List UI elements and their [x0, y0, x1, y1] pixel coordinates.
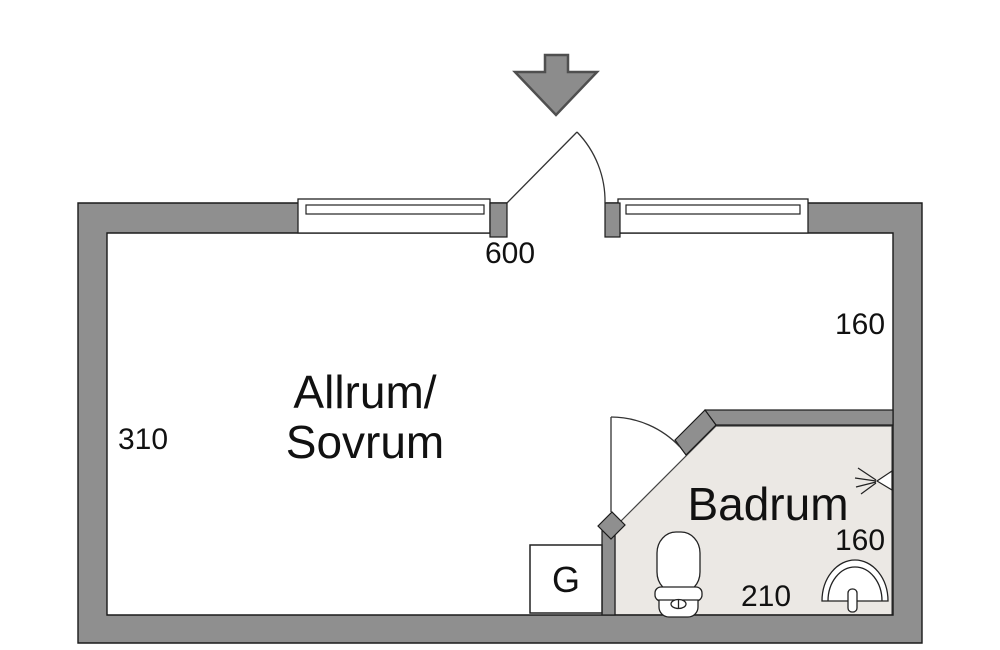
- window-glazing: [306, 205, 484, 214]
- main-room-name-line1: Allrum/: [286, 367, 444, 417]
- window-glazing: [626, 205, 800, 214]
- dimension-label-left-height: 310: [118, 425, 168, 455]
- window-frame: [618, 199, 808, 233]
- window-icon-left: [298, 199, 490, 233]
- entrance-door-leaf: [507, 132, 577, 203]
- sink-faucet: [848, 589, 857, 612]
- dimension-label-top-width: 600: [485, 239, 535, 269]
- dimension-label-right-height: 160: [835, 310, 885, 340]
- entrance-arrow-icon: [515, 55, 597, 115]
- toilet-icon: [655, 532, 702, 617]
- dimension-label-bathroom-width: 210: [741, 582, 791, 612]
- toilet-bowl: [657, 532, 700, 593]
- door-jamb-left: [490, 203, 507, 237]
- main-room-name-line2: Sovrum: [286, 417, 444, 467]
- entrance-arrow-shape: [515, 55, 597, 115]
- entrance-door-arc: [577, 132, 605, 203]
- door-jamb-right: [605, 203, 620, 237]
- floor-plan-canvas: 600 160 310 Allrum/ Sovrum Badrum 160 21…: [0, 0, 1000, 650]
- closet-letter: G: [552, 562, 580, 598]
- bathroom-door-arc: [611, 417, 680, 447]
- entrance-door-swing-icon: [507, 132, 605, 203]
- window-frame: [298, 199, 490, 233]
- dimension-label-bathroom-height: 160: [835, 526, 885, 556]
- bathroom-name: Badrum: [687, 479, 848, 529]
- main-room-name: Allrum/ Sovrum: [286, 367, 444, 467]
- window-icon-right: [618, 199, 808, 233]
- entrance-opening: [507, 201, 605, 235]
- bathroom-top-wall: [705, 410, 893, 425]
